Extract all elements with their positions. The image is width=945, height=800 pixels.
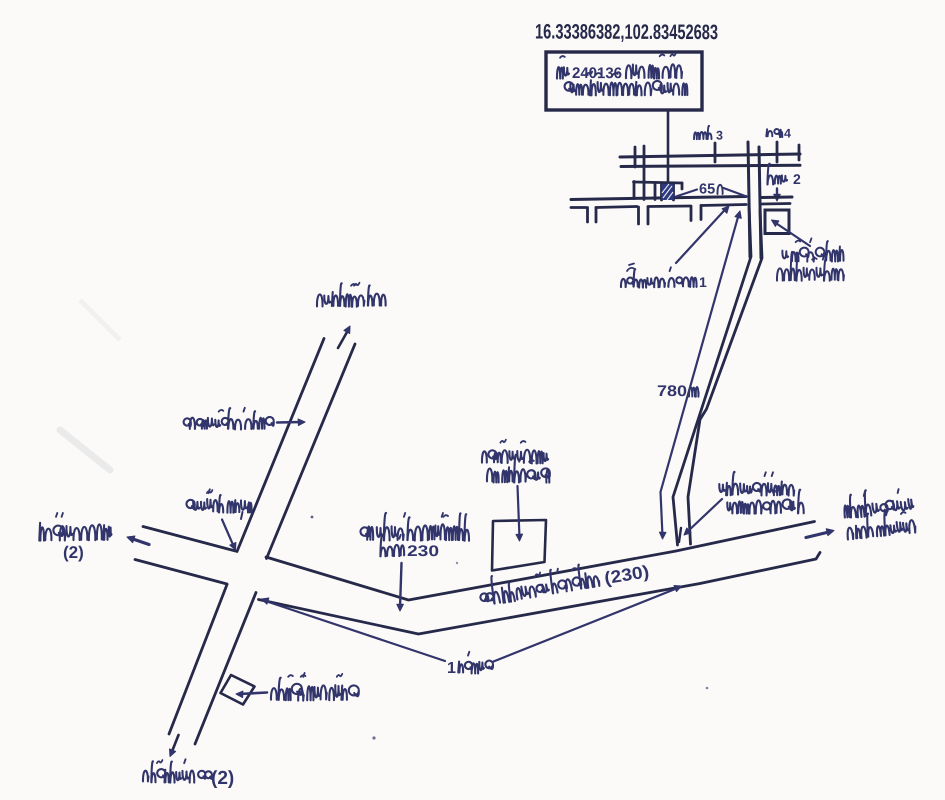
svg-text:(230): (230): [603, 561, 651, 588]
svg-text:65: 65: [699, 182, 715, 198]
svg-text:16.33386382,102.83452683: 16.33386382,102.83452683: [535, 21, 718, 45]
svg-text:780: 780: [657, 383, 687, 400]
svg-text:4: 4: [784, 127, 791, 141]
svg-text:(2): (2): [211, 768, 234, 789]
svg-text:1: 1: [699, 274, 707, 290]
svg-text:1: 1: [447, 660, 456, 677]
svg-text:(2): (2): [63, 543, 84, 562]
svg-text:230: 230: [407, 543, 439, 560]
svg-text:2: 2: [793, 171, 801, 187]
svg-text:3: 3: [716, 129, 723, 143]
